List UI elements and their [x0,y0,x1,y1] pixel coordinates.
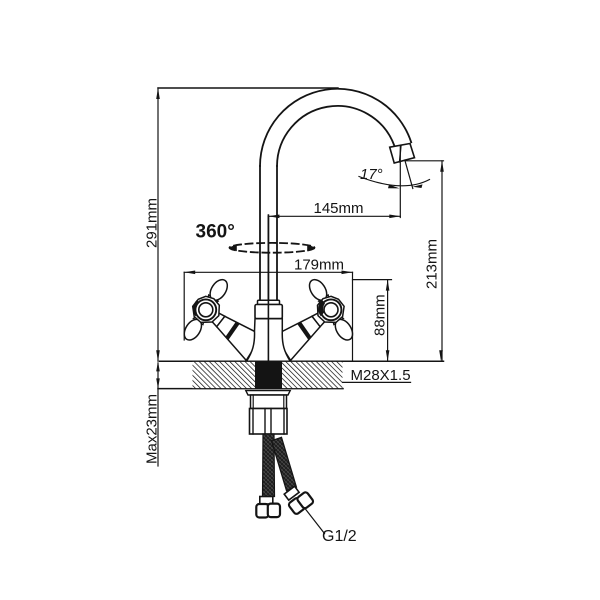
svg-text:M28X1.5: M28X1.5 [351,367,411,384]
svg-text:G1/2: G1/2 [322,528,357,545]
svg-text:17°: 17° [360,166,383,183]
svg-text:145mm: 145mm [314,200,364,217]
svg-text:291mm: 291mm [144,198,161,248]
svg-text:Max23mm: Max23mm [144,394,161,464]
svg-text:360°: 360° [196,222,235,243]
svg-text:213mm: 213mm [424,239,441,289]
svg-text:88mm: 88mm [372,294,389,336]
svg-text:179mm: 179mm [294,257,344,274]
